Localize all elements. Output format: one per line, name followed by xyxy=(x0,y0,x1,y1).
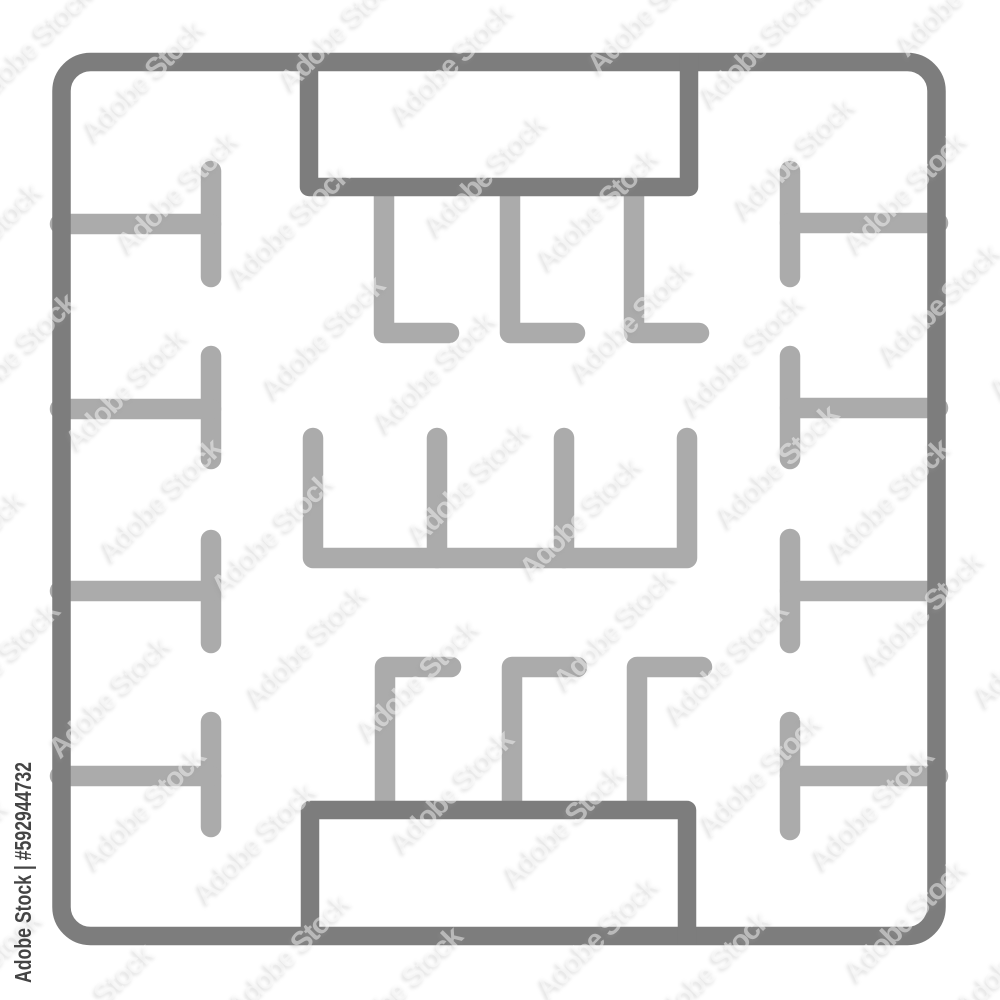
svg-text:Adobe Stock | #592944732: Adobe Stock | #592944732 xyxy=(10,762,36,983)
